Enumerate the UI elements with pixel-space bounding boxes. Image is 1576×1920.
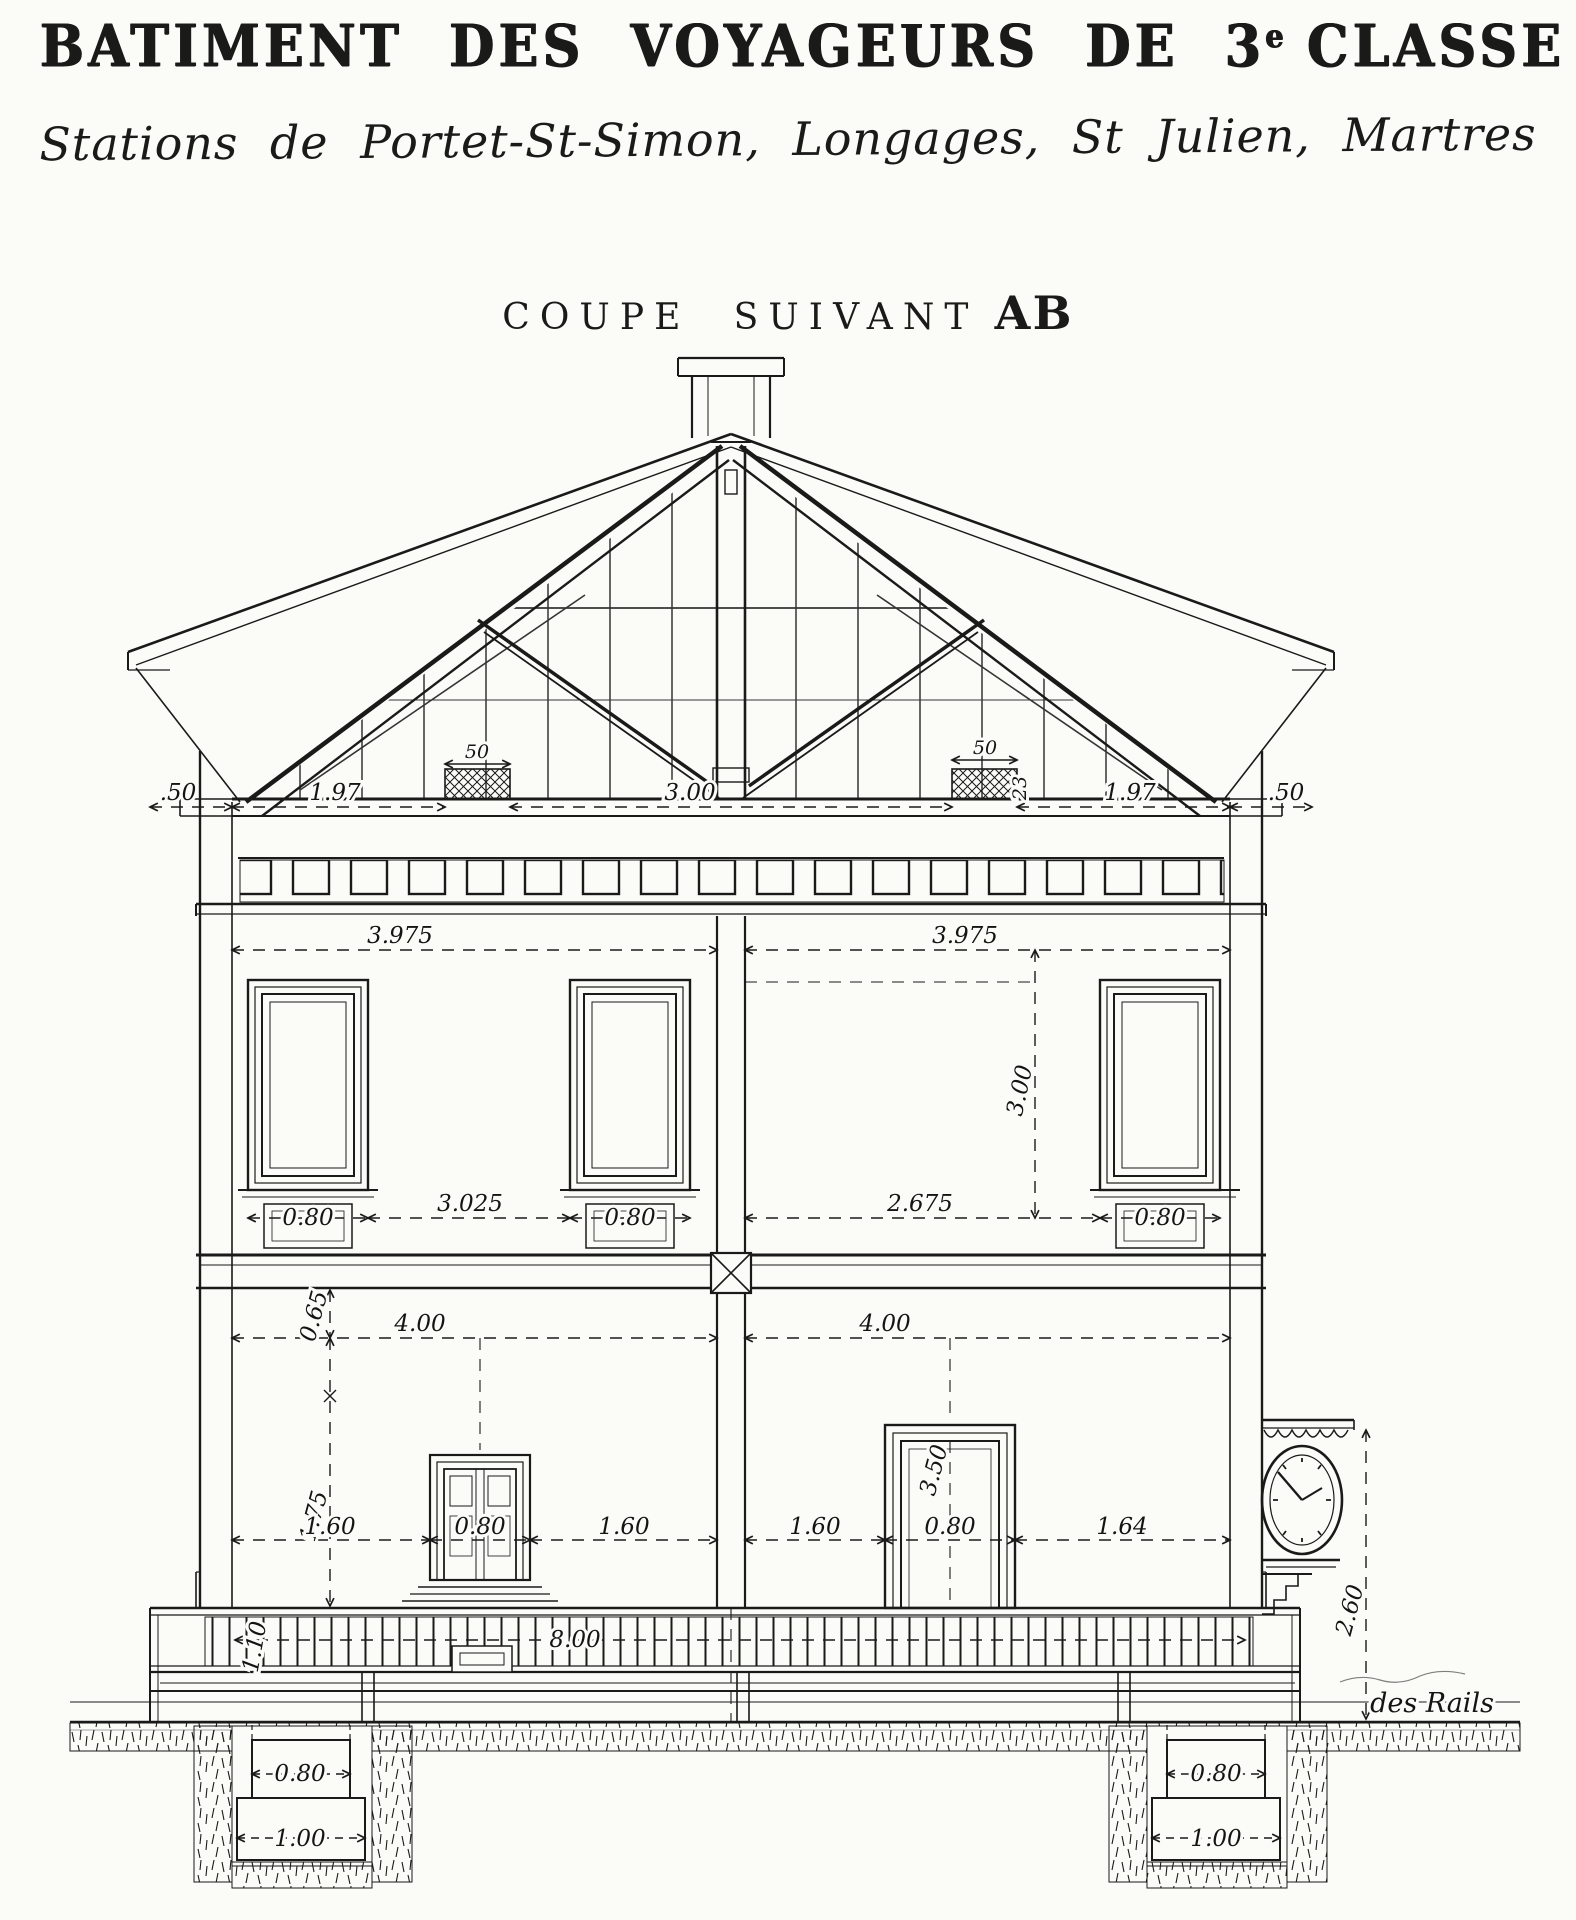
- upper-windows: [238, 980, 1240, 1248]
- drawing-title-suffix: CLASSE: [1307, 12, 1565, 80]
- rails-annotation: des Rails: [1340, 1671, 1494, 1719]
- balustrade: [205, 1617, 1253, 1666]
- clock-hand-hour: [1278, 1472, 1302, 1500]
- rails-level-label: des Rails: [1370, 1688, 1494, 1719]
- drawing-subtitle: Stations de Portet-St-Simon, Longages, S…: [30, 107, 1546, 172]
- dim-door-height: 3.50: [915, 1442, 953, 1498]
- dim-eave-left: .50: [160, 780, 197, 806]
- dim-platform-width: 8.00: [549, 1627, 600, 1653]
- faint-scribble: [1340, 1671, 1465, 1682]
- dim-attic-span-right: 1.97: [1104, 780, 1156, 806]
- platform: [70, 1608, 1520, 1721]
- dim-ground-room-left: 4.00: [393, 1311, 445, 1337]
- dim-floor-drop: 0.65: [295, 1288, 333, 1344]
- foundation-right: [1109, 1725, 1327, 1888]
- dim-upper-window-height: 3.00: [1002, 1063, 1038, 1119]
- dim-door-right-a: 1.60: [789, 1514, 840, 1540]
- vent-right: [952, 769, 1017, 799]
- dim-clock-height: 2.60: [1331, 1582, 1370, 1639]
- dim-foundation-right-width: 0.80: [1190, 1761, 1241, 1787]
- dim-vent-right: 50: [973, 737, 997, 759]
- dim-sill-window-right: 0.80: [1134, 1205, 1185, 1231]
- dim-sill-window-center: 0.80: [604, 1205, 655, 1231]
- dim-ground-room-right: 4.00: [858, 1311, 910, 1337]
- dim-attic-center: 3.00: [664, 780, 715, 806]
- dim-door-left-b: 1.60: [598, 1514, 649, 1540]
- vent-left: [445, 769, 510, 799]
- dim-sill-span-left: 3.025: [437, 1191, 503, 1217]
- section-title-text: COUPE SUIVANT: [502, 297, 978, 338]
- cornice: [196, 858, 1266, 916]
- floor-band: [196, 1253, 1266, 1293]
- dim-foundation-left-base: 1.00: [274, 1826, 325, 1852]
- dimension-lines: [150, 760, 1366, 1838]
- dim-door-left-a: 1.60: [304, 1514, 355, 1540]
- bracket-fringe: [1264, 1430, 1348, 1437]
- door-mat-grille: [452, 1646, 512, 1672]
- dim-attic-span-left: 1.97: [309, 780, 361, 806]
- drawing-title-superscript: e: [1265, 17, 1283, 55]
- dim-sill-window-left: 0.80: [282, 1205, 333, 1231]
- dim-upper-room-right: 3.975: [932, 923, 998, 949]
- station-clock: [1262, 1420, 1354, 1614]
- door-steps: [402, 1587, 558, 1601]
- dentil-band: [240, 860, 1224, 902]
- attic-vents: [445, 769, 1017, 799]
- dim-door-right-b: 1.64: [1096, 1514, 1147, 1540]
- dim-vent-left: 50: [465, 741, 489, 763]
- dim-foundation-right-base: 1.00: [1190, 1826, 1241, 1852]
- dim-foundation-left-width: 0.80: [274, 1761, 325, 1787]
- dim-upper-room-left: 3.975: [367, 923, 433, 949]
- roof: [128, 434, 1334, 802]
- dim-door-left-width: 0.80: [454, 1514, 505, 1540]
- dim-door-right-width: 0.80: [924, 1514, 975, 1540]
- drawing-sheet: BATIMENT DES VOYAGEURS DE 3eCLASSE Stati…: [0, 0, 1576, 1920]
- chimney: [678, 358, 784, 438]
- section-title: COUPE SUIVANTAB: [40, 286, 1536, 340]
- clock-hand-minute: [1302, 1488, 1322, 1500]
- drawing-title: BATIMENT DES VOYAGEURS DE 3eCLASSE: [40, 12, 1536, 80]
- dim-eave-right: .50: [1268, 780, 1305, 806]
- cross-section-drawing: .50 1.97 50 3.00 50 23 1.97 .50 3.975 3.…: [0, 350, 1576, 1920]
- foundation-left: [194, 1725, 412, 1888]
- dim-sill-span-right: 2.675: [886, 1191, 953, 1217]
- drawing-title-text: BATIMENT DES VOYAGEURS DE 3: [40, 12, 1265, 80]
- gable-framing: [280, 455, 1182, 798]
- dim-vent-side: 23: [1009, 776, 1031, 801]
- floor-joist-block: [711, 1253, 751, 1293]
- section-reference: AB: [995, 286, 1074, 340]
